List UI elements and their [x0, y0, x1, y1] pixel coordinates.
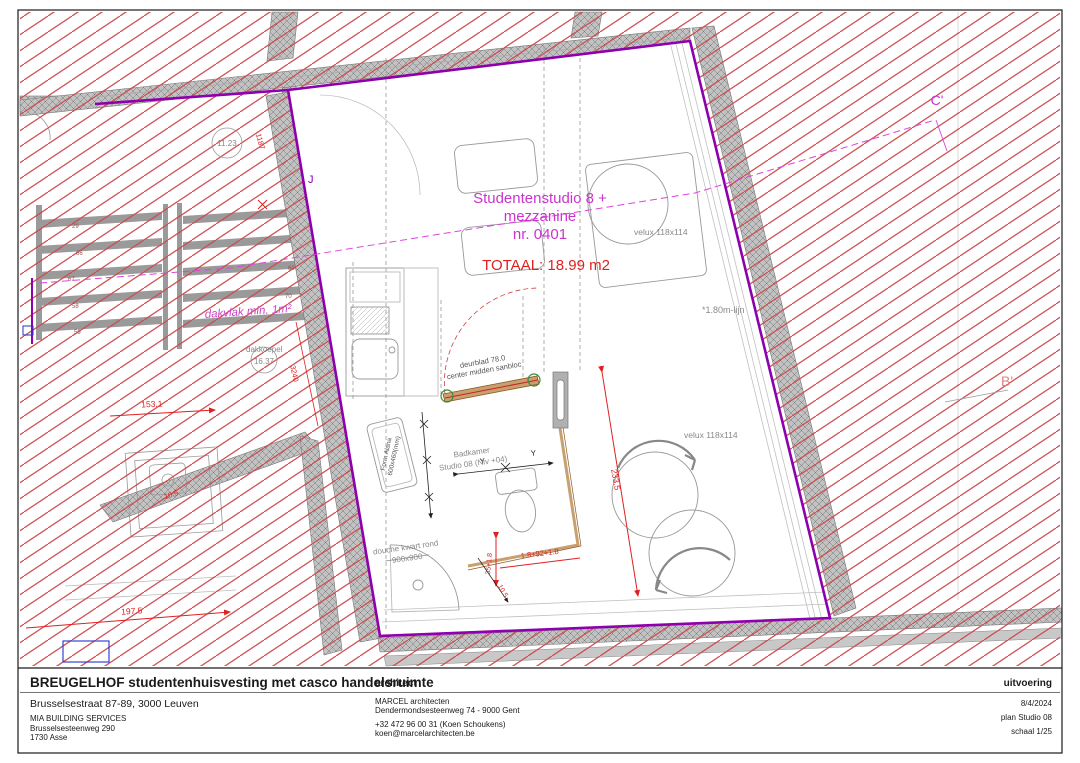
section-marker-j: J — [308, 174, 314, 186]
studio-title-line3: nr. 0401 — [513, 226, 567, 243]
client-city: 1730 Asse — [30, 733, 126, 743]
section-b-label: B' — [1001, 373, 1013, 389]
phase-label: uitvoering — [1004, 678, 1052, 689]
dim-153-1: 153.1 — [141, 398, 163, 409]
project-address: Brusselsestraat 87-89, 3000 Leuven — [30, 698, 199, 710]
stair-number: 70 — [285, 294, 292, 300]
client-block: MIA BUILDING SERVICES Brusselsesteenweg … — [30, 714, 126, 743]
dakkoepel-value: 16.37 — [254, 357, 275, 366]
floorplan-drawing: J 233.5 153.1 197.5 10.5 35+1.8 1.8+92+1… — [0, 0, 1080, 763]
studio-title-line2: mezzanine — [504, 208, 577, 225]
architect-email: koen@marcelarchitecten.be — [375, 729, 475, 739]
project-title: BREUGELHOF studentenhuisvesting met casc… — [30, 675, 434, 690]
stair-number: 29 — [72, 224, 79, 230]
stair-number: 66 — [76, 251, 83, 257]
stair-number: 58 — [72, 304, 79, 310]
studio-title-line1: Studentenstudio 8 + — [473, 190, 607, 207]
dim-197-5: 197.5 — [121, 605, 143, 616]
dakkoepel-label: dakkoepel — [246, 345, 283, 354]
section-c-label: C' — [931, 92, 944, 108]
architect-address: Dendermondsesteenweg 74 - 9000 Gent — [375, 706, 520, 716]
total-area-label: TOTAAL: 18.99 m2 — [482, 257, 610, 274]
stair-number: 67 — [68, 277, 75, 283]
architect-heading: architect — [375, 678, 417, 689]
client-street: Brusselsesteenweg 290 — [30, 724, 126, 734]
velux-top-label: velux 118x114 — [634, 227, 688, 237]
scale-label: schaal 1/25 — [1011, 727, 1052, 737]
velux-mid-label: velux 118x114 — [684, 430, 738, 440]
client-name: MIA BUILDING SERVICES — [30, 714, 126, 724]
stair-number: 59 — [74, 330, 81, 336]
line-180-label: *1.80m-lijn — [702, 305, 745, 315]
stair-number: 60 — [288, 266, 295, 272]
plan-name-label: plan Studio 08 — [1001, 713, 1052, 723]
ref-circle-value: 11.23 — [217, 139, 237, 148]
plan-sheet: J 233.5 153.1 197.5 10.5 35+1.8 1.8+92+1… — [0, 0, 1080, 763]
date-label: 8/4/2024 — [1021, 699, 1052, 709]
